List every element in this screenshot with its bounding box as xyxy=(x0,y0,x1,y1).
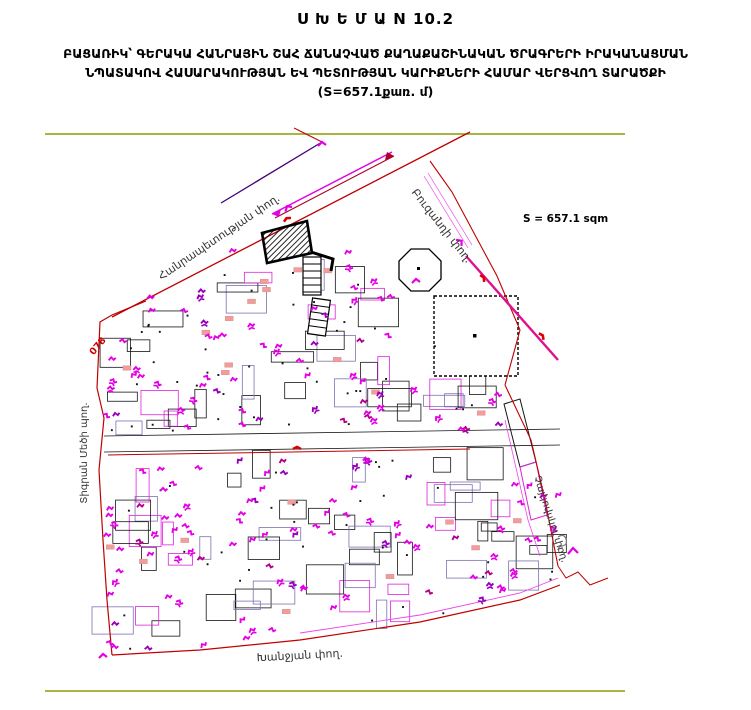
cadastral-map: Հանրապետության փող. Բուզանդի փող. Տիգրան… xyxy=(0,0,751,710)
khanjyan-thin-line xyxy=(300,578,558,633)
area-size-label: S = 657.1 sqm xyxy=(523,213,608,225)
octagon-building xyxy=(399,249,441,291)
street-spur xyxy=(294,128,322,142)
street-end-squiggle xyxy=(558,566,608,585)
street-label-tchaikovsky: Չայկովսկու փող. xyxy=(531,474,570,564)
street-lines xyxy=(97,128,608,655)
khanjyan-street-line xyxy=(112,585,560,655)
acquired-area-hatched xyxy=(262,221,333,271)
street-label-khanjyan: Խանջյան փող. xyxy=(256,647,343,665)
internal-street-corridor xyxy=(104,429,560,455)
school-building xyxy=(434,296,518,376)
street-label-tigran-mets: Տիգրան Մեծի պող. xyxy=(79,402,90,503)
tigran-mets-street-line xyxy=(97,301,146,655)
dimension-arrow-red xyxy=(275,156,394,218)
magenta-accent-marks xyxy=(99,142,578,658)
tchaikovsky-street-line xyxy=(505,385,558,566)
